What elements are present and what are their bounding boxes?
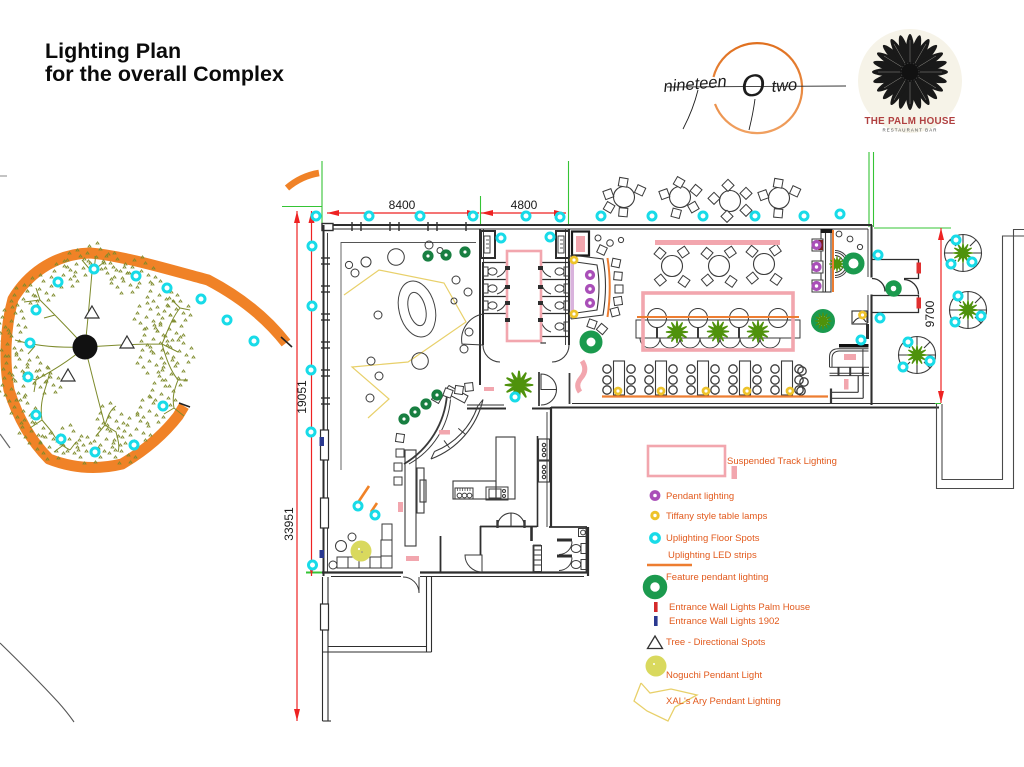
svg-text:Lighting Plan: Lighting Plan	[45, 39, 181, 63]
svg-text:4800: 4800	[511, 198, 538, 212]
svg-text:Entrance Wall Lights 1902: Entrance Wall Lights 1902	[669, 616, 780, 627]
svg-text:Suspended Track Lighting: Suspended Track Lighting	[727, 456, 837, 467]
svg-text:Feature pendant lighting: Feature pendant lighting	[666, 572, 768, 583]
svg-text:for the overall Complex: for the overall Complex	[45, 62, 284, 86]
svg-text:RESTAURANT BAR: RESTAURANT BAR	[882, 128, 937, 133]
svg-text:8400: 8400	[389, 198, 416, 212]
svg-text:Tiffany style table lamps: Tiffany style table lamps	[666, 511, 768, 522]
svg-text:Tree - Directional Spots: Tree - Directional Spots	[666, 637, 766, 648]
svg-text:Noguchi Pendant Light: Noguchi Pendant Light	[666, 670, 762, 681]
svg-text:9700: 9700	[923, 300, 937, 327]
svg-text:Uplighting Floor Spots: Uplighting Floor Spots	[666, 533, 760, 544]
svg-text:XAL's Ary Pendant Lighting: XAL's Ary Pendant Lighting	[666, 696, 781, 707]
svg-text:O: O	[740, 67, 767, 104]
svg-text:Pendant lighting: Pendant lighting	[666, 491, 734, 502]
svg-text:Entrance Wall Lights Palm Hous: Entrance Wall Lights Palm House	[669, 602, 810, 613]
svg-text:THE PALM HOUSE: THE PALM HOUSE	[864, 116, 955, 127]
svg-text:Uplighting LED strips: Uplighting LED strips	[668, 550, 757, 561]
svg-text:33951: 33951	[282, 507, 296, 541]
svg-text:two: two	[771, 76, 798, 96]
svg-text:19051: 19051	[295, 380, 309, 414]
